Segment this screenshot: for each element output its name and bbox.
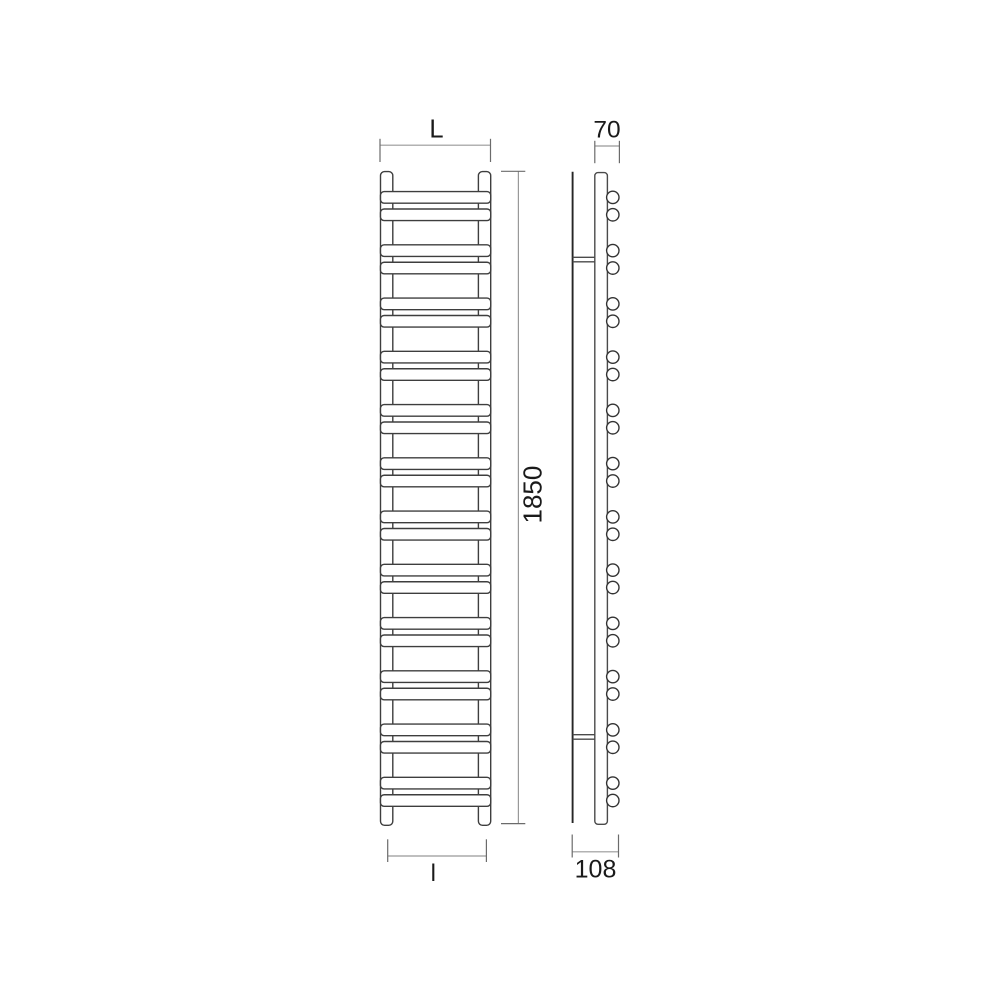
svg-text:l: l — [431, 860, 436, 887]
svg-text:1850: 1850 — [518, 466, 548, 524]
svg-text:L: L — [429, 115, 443, 143]
svg-text:70: 70 — [593, 117, 620, 144]
svg-text:108: 108 — [575, 856, 617, 884]
